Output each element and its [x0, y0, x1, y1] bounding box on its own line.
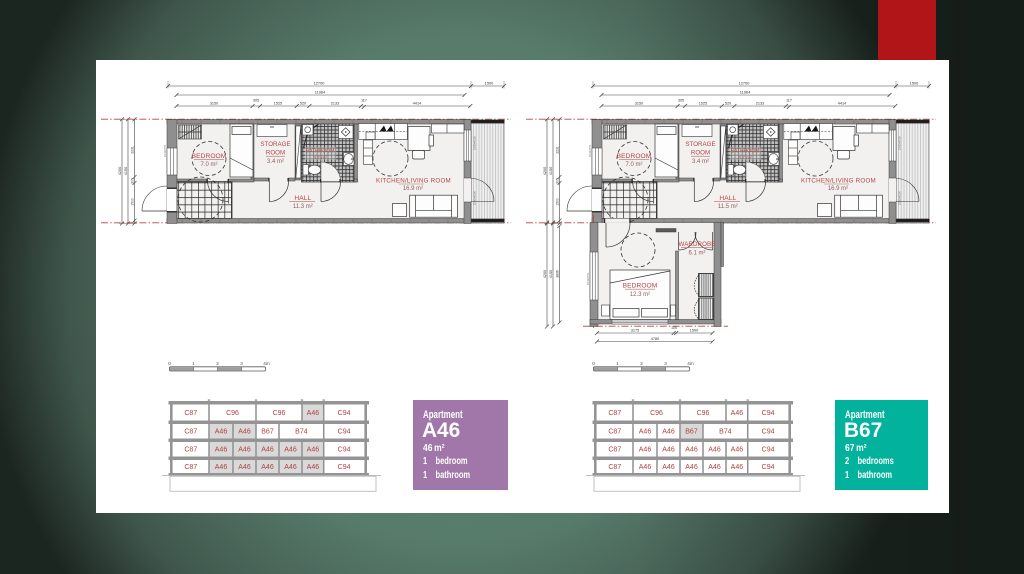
svg-text:1500: 1500 [485, 80, 494, 85]
svg-text:A46: A46 [261, 464, 274, 471]
svg-text:3.4 m²: 3.4 m² [692, 159, 709, 165]
svg-text:B74: B74 [719, 429, 732, 436]
svg-text:520: 520 [725, 101, 731, 105]
svg-text:2133: 2133 [756, 101, 764, 105]
svg-text:305: 305 [130, 178, 134, 184]
svg-text:2: 2 [640, 361, 643, 366]
svg-text:3.7 m²: 3.7 m² [313, 155, 327, 160]
svg-text:7.0 m²: 7.0 m² [625, 162, 642, 168]
svg-text:11964: 11964 [315, 89, 326, 94]
svg-text:BATHROOM: BATHROOM [306, 148, 335, 154]
svg-text:3150: 3150 [210, 101, 218, 105]
svg-text:305: 305 [678, 99, 684, 103]
svg-text:A46: A46 [215, 464, 228, 471]
svg-text:1500x4100: 1500x4100 [473, 136, 477, 150]
svg-text:11964: 11964 [740, 89, 751, 94]
svg-text:A46: A46 [685, 447, 698, 454]
svg-text:ROOM: ROOM [266, 150, 285, 157]
svg-text:3.7 m²: 3.7 m² [738, 155, 752, 160]
svg-text:1500x4100: 1500x4100 [473, 191, 477, 205]
svg-text:A46: A46 [685, 464, 698, 471]
svg-text:C87: C87 [608, 429, 621, 436]
svg-text:11.3 m²: 11.3 m² [293, 204, 313, 210]
svg-text:A46: A46 [284, 464, 297, 471]
svg-text:1500: 1500 [130, 198, 134, 206]
svg-text:7.0 m²: 7.0 m² [200, 162, 217, 168]
svg-text:12.3 m²: 12.3 m² [630, 292, 650, 298]
svg-text:C87: C87 [184, 429, 197, 436]
svg-text:1: 1 [616, 361, 619, 366]
svg-text:3: 3 [240, 361, 243, 366]
svg-text:HALL: HALL [719, 195, 736, 202]
svg-text:4150: 4150 [549, 270, 553, 278]
svg-text:A46: A46 [215, 447, 228, 454]
svg-text:117: 117 [786, 99, 792, 103]
svg-text:ROOM: ROOM [691, 150, 710, 157]
svg-text:16.9 m²: 16.9 m² [828, 186, 848, 192]
svg-text:B67: B67 [685, 429, 698, 436]
svg-text:C94: C94 [338, 410, 351, 417]
svg-text:87336751: 87336751 [163, 144, 167, 157]
svg-text:4414: 4414 [838, 101, 846, 105]
svg-text:C94: C94 [762, 429, 775, 436]
svg-text:C96: C96 [226, 410, 239, 417]
svg-text:C87: C87 [608, 447, 621, 454]
svg-text:C87: C87 [608, 464, 621, 471]
svg-text:305: 305 [555, 178, 559, 184]
svg-text:C94: C94 [762, 464, 775, 471]
svg-text:4200: 4200 [118, 167, 122, 175]
svg-text:3150: 3150 [635, 101, 643, 105]
svg-text:16.9 m²: 16.9 m² [403, 186, 423, 192]
svg-text:C96: C96 [697, 410, 710, 417]
svg-text:A46: A46 [307, 464, 320, 471]
svg-text:C94: C94 [762, 410, 775, 417]
svg-text:A46: A46 [731, 464, 744, 471]
svg-text:C87: C87 [184, 410, 197, 417]
svg-text:305: 305 [253, 99, 259, 103]
svg-text:A46: A46 [238, 447, 251, 454]
svg-text:4200: 4200 [543, 270, 547, 278]
svg-text:3175: 3175 [631, 328, 639, 332]
svg-text:BEDROOM: BEDROOM [192, 153, 227, 160]
svg-text:2231: 2231 [130, 146, 134, 154]
svg-text:3: 3 [664, 361, 667, 366]
svg-text:A46: A46 [662, 447, 675, 454]
svg-text:C87: C87 [184, 447, 197, 454]
svg-text:C94: C94 [338, 447, 351, 454]
svg-text:4150: 4150 [549, 167, 553, 175]
svg-text:STORAGE: STORAGE [260, 141, 290, 148]
svg-text:A46: A46 [731, 410, 744, 417]
svg-text:A46: A46 [662, 464, 675, 471]
svg-text:C94: C94 [762, 447, 775, 454]
svg-text:KITCHEN/LIVING ROOM: KITCHEN/LIVING ROOM [801, 177, 876, 184]
svg-text:WARDROBE: WARDROBE [678, 241, 715, 248]
svg-text:STORAGE: STORAGE [685, 141, 715, 148]
svg-text:B74: B74 [295, 429, 308, 436]
svg-text:C96: C96 [650, 410, 663, 417]
svg-text:B67: B67 [261, 429, 274, 436]
svg-text:A46: A46 [307, 410, 320, 417]
svg-text:A46: A46 [662, 429, 675, 436]
svg-text:A46: A46 [708, 464, 721, 471]
svg-text:11.5 m²: 11.5 m² [718, 204, 738, 210]
svg-text:HALL: HALL [294, 195, 311, 202]
svg-text:KITCHEN/LIVING ROOM: KITCHEN/LIVING ROOM [376, 177, 451, 184]
svg-text:C96: C96 [273, 410, 286, 417]
svg-text:A46: A46 [238, 464, 251, 471]
svg-text:1525: 1525 [699, 101, 707, 105]
svg-text:1500x4100: 1500x4100 [898, 136, 902, 150]
svg-text:1500x4100: 1500x4100 [898, 191, 902, 205]
svg-text:87336751: 87336751 [588, 144, 592, 157]
svg-text:A46: A46 [307, 447, 320, 454]
svg-text:520: 520 [300, 101, 306, 105]
svg-text:A46: A46 [708, 447, 721, 454]
svg-text:A46: A46 [261, 447, 274, 454]
svg-text:1: 1 [192, 361, 195, 366]
svg-text:12700: 12700 [314, 80, 326, 85]
svg-text:A46: A46 [639, 429, 652, 436]
svg-text:A46: A46 [731, 447, 744, 454]
svg-text:A46: A46 [238, 429, 251, 436]
svg-text:117: 117 [361, 99, 367, 103]
svg-text:87336751: 87336751 [586, 272, 590, 285]
svg-text:A46: A46 [639, 447, 652, 454]
svg-text:4200: 4200 [543, 167, 547, 175]
svg-text:6.1 m²: 6.1 m² [688, 251, 705, 257]
svg-text:BEDROOM: BEDROOM [617, 153, 652, 160]
svg-text:A46: A46 [215, 429, 228, 436]
svg-text:2: 2 [216, 361, 219, 366]
svg-text:3.4 m²: 3.4 m² [267, 159, 284, 165]
svg-text:C87: C87 [608, 410, 621, 417]
svg-text:A46: A46 [639, 464, 652, 471]
svg-text:2133: 2133 [331, 101, 339, 105]
svg-text:1500: 1500 [690, 328, 698, 332]
svg-text:C87: C87 [184, 464, 197, 471]
svg-text:C94: C94 [338, 464, 351, 471]
svg-text:0: 0 [168, 361, 171, 366]
svg-text:105: 105 [671, 326, 677, 330]
svg-text:4414: 4414 [413, 101, 421, 105]
svg-text:4m: 4m [687, 361, 694, 366]
svg-text:4150: 4150 [124, 167, 128, 175]
svg-text:1500: 1500 [555, 198, 559, 206]
svg-text:4m: 4m [263, 361, 270, 366]
svg-text:0: 0 [592, 361, 595, 366]
svg-text:3836: 3836 [555, 270, 559, 278]
svg-text:C94: C94 [338, 429, 351, 436]
svg-text:1525: 1525 [274, 101, 282, 105]
svg-text:BEDROOM: BEDROOM [623, 283, 658, 290]
svg-text:1500: 1500 [910, 80, 919, 85]
svg-text:BATHROOM: BATHROOM [731, 148, 760, 154]
svg-text:12700: 12700 [739, 80, 751, 85]
svg-text:A46: A46 [284, 447, 297, 454]
svg-text:4780: 4780 [651, 337, 659, 341]
svg-text:2231: 2231 [555, 146, 559, 154]
